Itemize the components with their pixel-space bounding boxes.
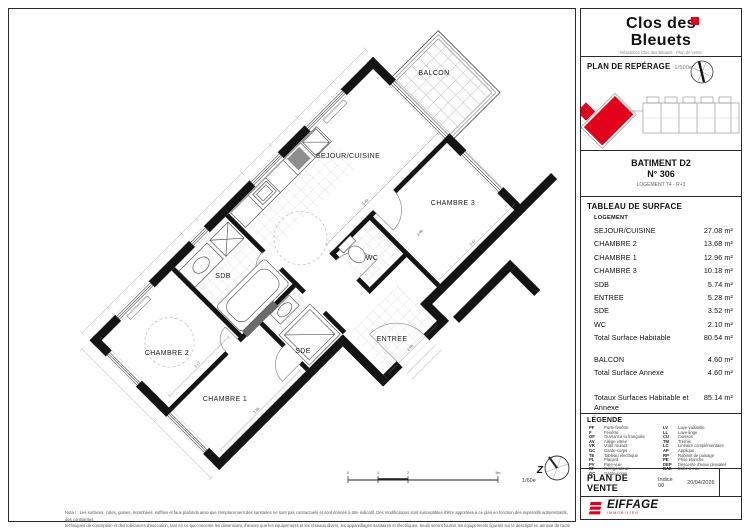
project-title-line2: Bleuets [581, 32, 741, 49]
disclaimer-notes: Nota ! : Les surfaces, cotes, gaines, re… [65, 510, 570, 530]
surface-total-annexe: Total Surface Annexe4.60 m² [581, 366, 741, 379]
scale-tick: 2 [407, 471, 409, 475]
highlighted-unit [584, 96, 633, 145]
project-title-section: Clos des Bleuets Résidence Clos des Bleu… [581, 9, 741, 57]
north-compass: Z [536, 456, 569, 480]
dimension-chains [70, 47, 503, 480]
scale-label: 1/60e [522, 478, 536, 484]
surface-row: WC2.10 m² [581, 318, 741, 331]
room-label-chambre1: CHAMBRE 1 [203, 396, 247, 403]
batiment-numero: N° 306 [581, 169, 741, 180]
scale-tick: 1 [377, 471, 379, 475]
note-line: techniques de conception et des toléranc… [65, 523, 570, 530]
surface-row-value: 2.10 m² [708, 318, 733, 331]
surface-balcon-row: BALCON4.60 m² [581, 353, 741, 366]
surface-row-value: 5.28 m² [708, 291, 733, 304]
surface-row: CHAMBRE 310.18 m² [581, 264, 741, 277]
surface-row: SDE3.52 m² [581, 304, 741, 317]
surface-row: CHAMBRE 213.68 m² [581, 237, 741, 250]
red-square-mark [691, 17, 699, 25]
surface-row-label: WC [594, 318, 606, 331]
room-label-wc: WC [366, 255, 378, 262]
title-block: Clos des Bleuets Résidence Clos des Bleu… [580, 8, 742, 520]
surface-row: CHAMBRE 112.96 m² [581, 251, 741, 264]
plan-de-vente-title: PLAN DE VENTE [581, 473, 644, 493]
surface-row-label: CHAMBRE 3 [594, 264, 637, 277]
plan-de-vente-section: PLAN DE VENTE Indice 00 20/04/2026 [581, 469, 741, 497]
reperage-section: PLAN DE REPÉRAGE1/500e [581, 57, 741, 151]
batiment-logement: LOGEMENT T4 - R+3 [581, 182, 741, 188]
surface-total-habitable: Total Surface Habitable80.54 m² [581, 331, 741, 344]
surface-row-value: 10.18 m² [704, 264, 733, 277]
project-title-line1: Clos des [581, 15, 741, 32]
balcony [389, 31, 501, 143]
surface-table-title: TABLEAU DE SURFACE [581, 197, 741, 213]
dim-value: 3.47 [469, 239, 477, 247]
surface-row-label: SEJOUR/CUISINE [594, 224, 656, 237]
apartment-rotated-group: 3.17 3.85 5.40 3.47 2.95 3.98 [70, 9, 575, 521]
surface-row-value: 3.52 m² [708, 304, 733, 317]
surface-row-label: CHAMBRE 2 [594, 237, 637, 250]
room-label-chambre2: CHAMBRE 2 [145, 350, 189, 357]
surface-row-label: SDB [594, 278, 609, 291]
scale-tick: 0 [347, 471, 349, 475]
surface-total-global: Totaux Surfaces Habitable et Annexe85.14… [581, 391, 741, 413]
surface-row-value: 12.96 m² [704, 251, 733, 264]
dim-value: 3.17 [193, 361, 201, 369]
room-label-balcon: BALCON [418, 70, 449, 77]
logo-section: EIFFAGE IMMOBILIER [581, 497, 741, 519]
eiffage-logo-subtext: IMMOBILIER [607, 512, 658, 516]
room-label-chambre3: CHAMBRE 3 [431, 200, 475, 207]
surface-row-value: 13.68 m² [704, 237, 733, 250]
dim-value: 3.98 [416, 229, 424, 237]
surface-row: ENTREE5.28 m² [581, 291, 741, 304]
batiment-section: BATIMENT D2 N° 306 LOGEMENT T4 - R+3 [581, 151, 741, 197]
legend-section: LÉGENDE PFPorte-fenêtreFFenêtreOFOuvrant… [581, 414, 741, 469]
surface-row: SDB5.74 m² [581, 278, 741, 291]
surface-row-label: CHAMBRE 1 [594, 251, 637, 264]
north-letter: Z [536, 465, 544, 476]
reperage-scale: 1/500e [674, 65, 692, 71]
surface-row-value: 27.08 m² [704, 224, 733, 237]
room-label-sdb: SDB [215, 273, 231, 280]
room-label-entree: ENTREE [377, 336, 408, 343]
reperage-title: PLAN DE REPÉRAGE1/500e [587, 62, 692, 71]
scale-tick: 5m [496, 471, 501, 475]
surface-row-label: ENTREE [594, 291, 624, 304]
surface-table-section: TABLEAU DE SURFACE LOGEMENT SEJOUR/CUISI… [581, 197, 741, 414]
dim-value: 5.40 [361, 198, 369, 206]
room-label-sde: SDE [295, 348, 311, 355]
batiment-name: BATIMENT D2 [581, 158, 741, 169]
legend-title: LÉGENDE [581, 414, 741, 425]
scale-bar: 0 1 2 5m [347, 471, 501, 483]
empty-cell [719, 469, 741, 496]
surface-row-label: SDE [594, 304, 609, 317]
surface-group-label: LOGEMENT [581, 213, 741, 224]
minimap-building [581, 83, 739, 148]
surface-rows: SEJOUR/CUISINE27.08 m²CHAMBRE 213.68 m²C… [581, 224, 741, 331]
indice-value: Indice 00 [658, 477, 675, 489]
note-line: Nota ! : Les surfaces, cotes, gaines, re… [65, 510, 570, 523]
eiffage-logo-text: EIFFAGE [607, 500, 658, 512]
key-plan-minimap [581, 57, 743, 151]
minimap-compass [691, 61, 713, 83]
floor-plan-frame: 3.17 3.85 5.40 3.47 2.95 3.98 BALCON SEJ… [8, 8, 576, 522]
surface-row: SEJOUR/CUISINE27.08 m² [581, 224, 741, 237]
plan-de-vente-sheet: 3.17 3.85 5.40 3.47 2.95 3.98 BALCON SEJ… [0, 0, 750, 530]
date-value: 20/04/2026 [687, 480, 715, 486]
dim-value: 3.85 [253, 407, 261, 415]
project-address: Résidence Clos des Bleuets · Plan de ven… [581, 50, 741, 55]
surface-row-value: 5.74 m² [708, 278, 733, 291]
room-label-sejour: SEJOUR/CUISINE [316, 153, 380, 160]
floor-plan-drawing: 3.17 3.85 5.40 3.47 2.95 3.98 BALCON SEJ… [9, 9, 575, 521]
eiffage-logo-icon [587, 501, 603, 516]
